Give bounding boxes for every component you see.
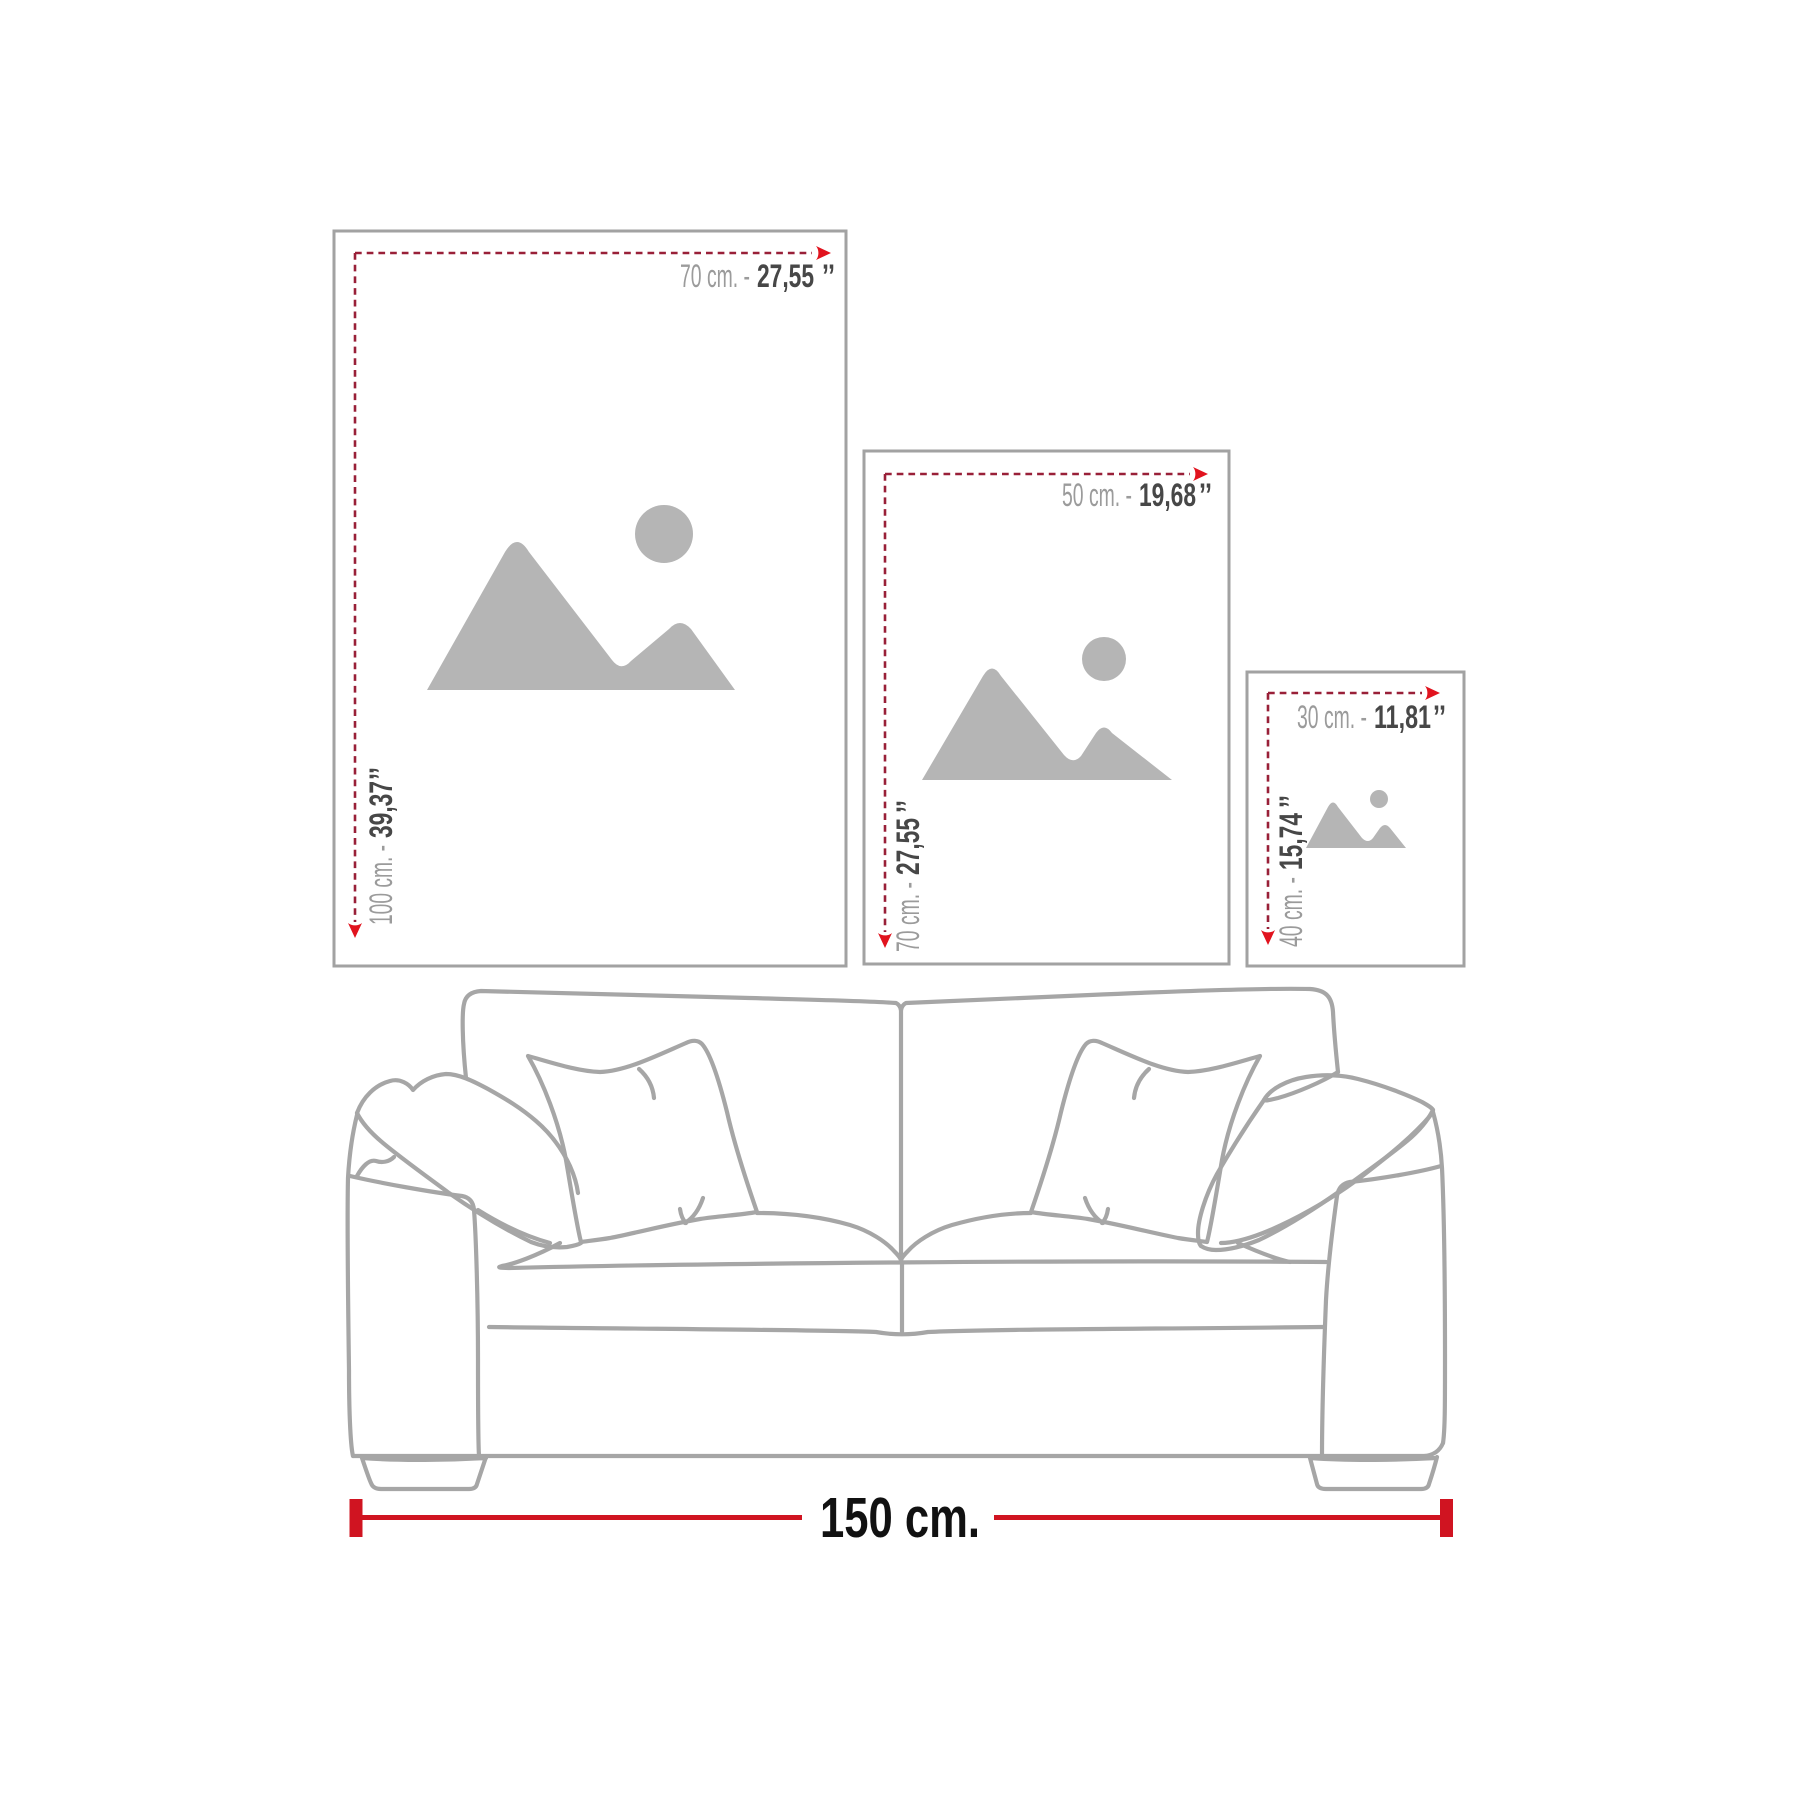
svg-text:15,74: 15,74 xyxy=(1273,813,1309,870)
svg-text:’’: ’’ xyxy=(890,800,926,813)
svg-text:’’: ’’ xyxy=(1199,477,1212,513)
svg-text:39,37: 39,37 xyxy=(363,781,399,838)
svg-text:’’: ’’ xyxy=(363,767,399,780)
svg-text:50 cm. -: 50 cm. - xyxy=(1062,477,1132,513)
svg-text:150 cm.: 150 cm. xyxy=(820,1486,980,1550)
svg-text:30 cm. -: 30 cm. - xyxy=(1297,699,1367,735)
svg-text:’’: ’’ xyxy=(822,258,835,294)
svg-text:70 cm. -: 70 cm. - xyxy=(890,882,926,952)
svg-text:19,68: 19,68 xyxy=(1139,477,1196,513)
svg-text:’’: ’’ xyxy=(1433,699,1446,735)
svg-text:27,55: 27,55 xyxy=(757,258,814,294)
svg-text:’’: ’’ xyxy=(1273,795,1309,808)
svg-text:11,81: 11,81 xyxy=(1374,699,1431,735)
svg-text:27,55: 27,55 xyxy=(890,818,926,875)
svg-text:100 cm. -: 100 cm. - xyxy=(363,845,399,925)
svg-text:40 cm. -: 40 cm. - xyxy=(1273,877,1309,947)
svg-text:70 cm. -: 70 cm. - xyxy=(680,258,750,294)
